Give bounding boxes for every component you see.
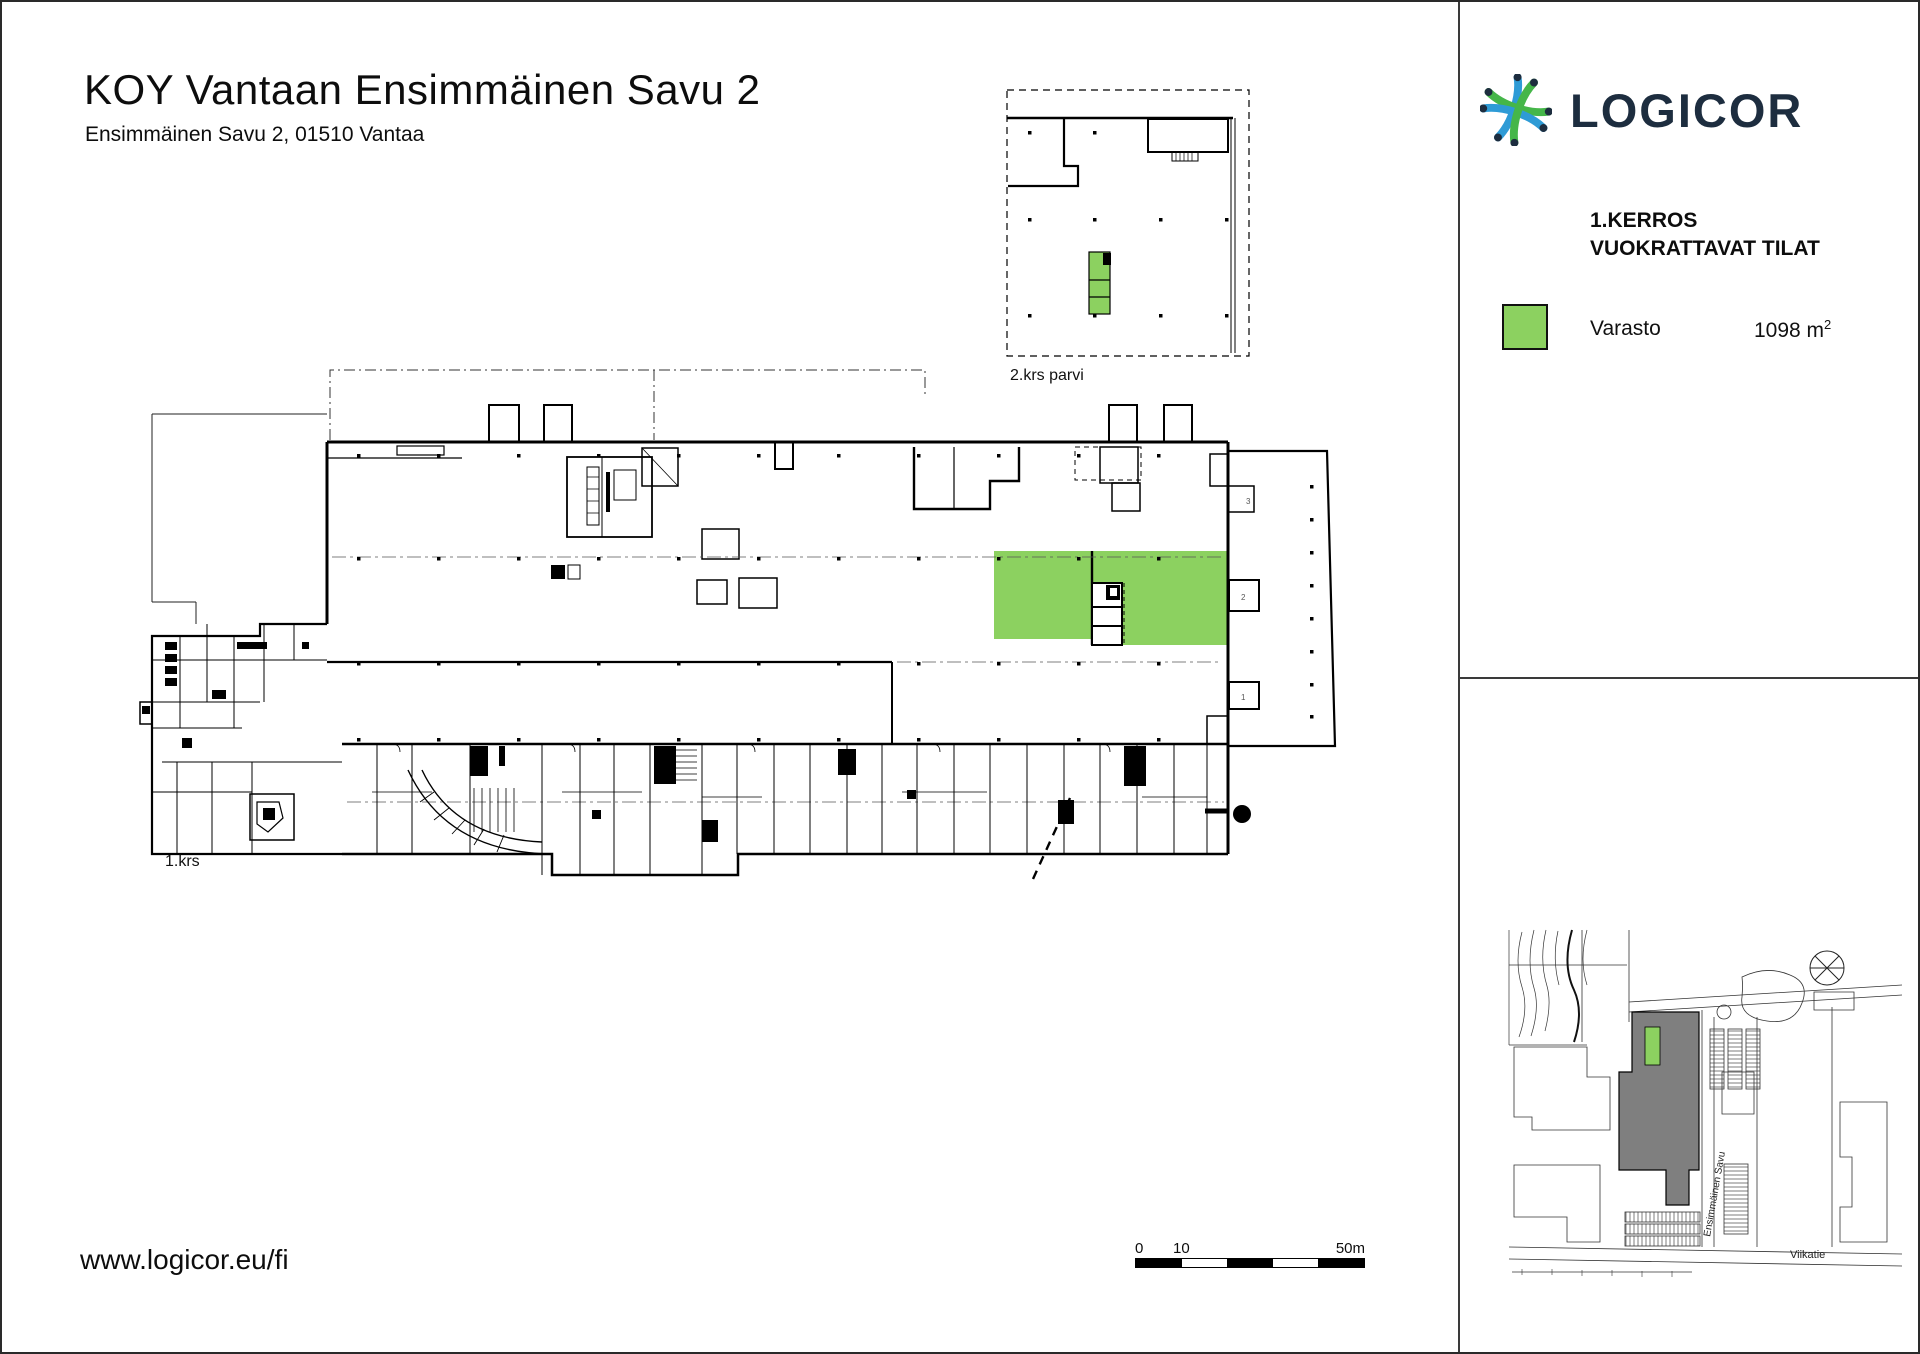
column-grid-dots [357, 131, 1314, 742]
brand-wordmark: LOGICOR [1570, 83, 1803, 138]
legend-area-number: 1098 m [1754, 319, 1824, 342]
map-unit-highlight [1645, 1027, 1660, 1065]
map-stream [1567, 930, 1579, 1042]
legend-color-swatch [1502, 304, 1548, 350]
mezzanine-projection-outline [330, 370, 925, 440]
map-roundabout [1810, 951, 1844, 985]
annex-room-1-label: 1 [1241, 693, 1246, 702]
legend-area-sup: 2 [1824, 317, 1831, 332]
brochure-page: KOY Vantaan Ensimmäinen Savu 2 Ensimmäin… [0, 0, 1920, 1354]
scale-bar-segments [1135, 1258, 1365, 1268]
yard-outline [152, 414, 327, 624]
office-strip-cores [470, 746, 1146, 842]
inset-label: 2.krs parvi [1010, 367, 1084, 384]
hall-detail-block [551, 565, 565, 579]
legend-area-value: 1098 m2 [1754, 317, 1831, 343]
left-annex-rooms [140, 624, 550, 854]
legend-heading-line1: 1.KERROS [1590, 207, 1820, 235]
site-map: Viikatie Ensimmäinen Savu [1492, 917, 1902, 1287]
floor-plan: 3 2 1 [2, 2, 1459, 1354]
sidebar-divider-horizontal [1458, 677, 1920, 679]
wall-fitting-dot [1233, 805, 1251, 823]
office-strip-rooms [372, 744, 1207, 875]
brand-row: LOGICOR [1480, 74, 1803, 146]
annex-room-2-label: 2 [1241, 593, 1246, 602]
hall-detail-bar [606, 472, 610, 512]
logicor-logo-icon [1480, 74, 1552, 146]
map-street-viikatie: Viikatie [1790, 1249, 1825, 1261]
floor-label: 1.krs [165, 853, 200, 870]
annex-room-3-label: 3 [1246, 497, 1251, 506]
scale-bar: 0 10 50m [1135, 1240, 1365, 1270]
legend-heading: 1.KERROS VUOKRATTAVAT TILAT [1590, 207, 1820, 263]
scale-mid-label: 10 [1173, 1240, 1190, 1257]
map-neighbor-buildings [1514, 970, 1887, 1242]
scale-end-label: 50m [1336, 1240, 1365, 1257]
legend-heading-line2: VUOKRATTAVAT TILAT [1590, 235, 1820, 263]
mezzanine-inset [1007, 90, 1249, 356]
legend-label: Varasto [1590, 317, 1661, 341]
scale-start-label: 0 [1135, 1240, 1143, 1257]
